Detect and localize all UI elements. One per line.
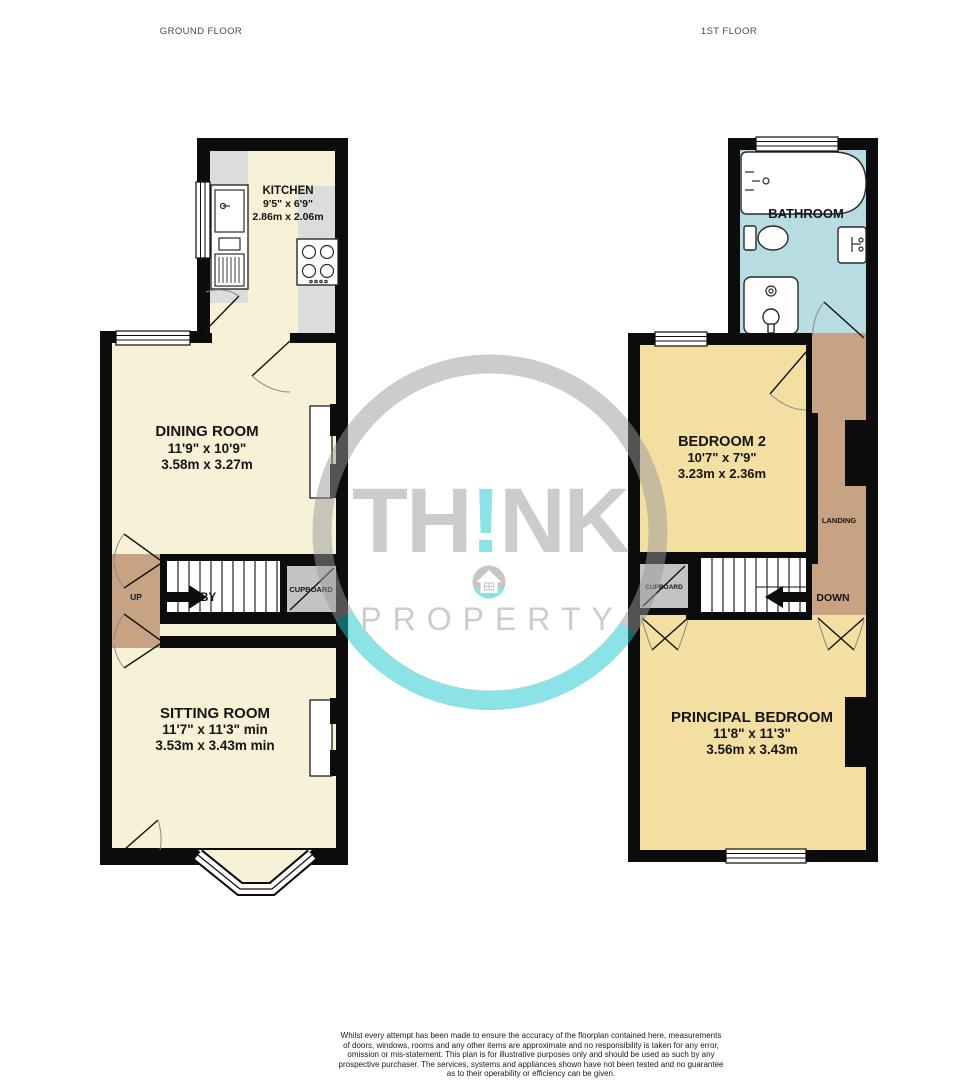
principal-bedroom-dims-metric: 3.56m x 3.43m	[706, 742, 798, 757]
down-label: DOWN	[816, 592, 849, 604]
staircase-first	[695, 552, 812, 620]
bathroom-window	[756, 137, 838, 151]
bathroom-label: BATHROOM	[768, 206, 844, 221]
disclaimer-line: Whilst every attempt has been made to en…	[93, 1031, 969, 1041]
floorplan-page: GROUND FLOOR 1ST FLOOR	[0, 0, 976, 1080]
disclaimer-line: prospective purchaser. The services, sys…	[93, 1060, 969, 1070]
watermark-brand: TH!NK	[352, 470, 630, 572]
landing-label: LANDING	[822, 516, 856, 525]
shower-basin-icon	[744, 277, 798, 334]
landing-chimney	[845, 420, 878, 486]
disclaimer: Whilst every attempt has been made to en…	[93, 1031, 969, 1080]
principal-bedroom-label: PRINCIPAL BEDROOM	[671, 709, 833, 726]
kitchen-dims-imperial: 9'5" x 6'9"	[263, 198, 313, 210]
watermark: TH!NK PROPERTY	[322, 364, 658, 701]
bedroom2-dims-imperial: 10'7" x 7'9"	[687, 450, 756, 465]
sitting-room-dims-imperial: 11'7" x 11'3" min	[162, 722, 268, 737]
sitting-room-label: SITTING ROOM	[160, 705, 270, 722]
ground-floor-plan: LOBBY	[100, 138, 348, 889]
principal-window	[726, 849, 806, 863]
toilet-icon	[744, 226, 788, 250]
sitting-chimney	[310, 698, 348, 776]
dining-room-dims-imperial: 11'9" x 10'9"	[168, 441, 247, 456]
kitchen-window	[196, 182, 210, 258]
principal-bedroom-dims-imperial: 11'8" x 11'3"	[713, 726, 791, 741]
dining-window	[116, 331, 190, 345]
disclaimer-line: of doors, windows, rooms and any other i…	[93, 1041, 969, 1051]
staircase-ground	[160, 554, 287, 624]
kitchen-label: KITCHEN	[262, 185, 313, 197]
bedroom2-label: BEDROOM 2	[678, 434, 766, 450]
bathtub-icon	[741, 152, 866, 214]
disclaimer-line: as to their operability or efficiency ca…	[93, 1069, 969, 1079]
dining-room-dims-metric: 3.58m x 3.27m	[161, 457, 253, 472]
watermark-word: PROPERTY	[360, 601, 623, 637]
principal-chimney	[845, 697, 878, 767]
dining-room-label: DINING ROOM	[155, 423, 258, 440]
floorplan-canvas: LOBBY	[0, 0, 976, 1080]
disclaimer-line: omission or mis-statement. This plan is …	[93, 1050, 969, 1060]
kitchen-dims-metric: 2.86m x 2.06m	[252, 211, 323, 223]
bedroom2-window	[655, 332, 707, 346]
bedroom2-dims-metric: 3.23m x 2.36m	[678, 466, 766, 481]
bay-window	[198, 850, 312, 889]
first-floor-plan: BATHROOM BEDROOM 2 10'7" x 7'9" 3.23m x …	[628, 137, 878, 863]
watermark-house-icon	[473, 566, 506, 599]
hob-icon	[297, 239, 338, 285]
kitchen-sink-icon	[211, 185, 248, 289]
sitting-room-dims-metric: 3.53m x 3.43m min	[155, 738, 274, 753]
basin-icon	[838, 227, 866, 263]
up-label: UP	[130, 592, 142, 602]
